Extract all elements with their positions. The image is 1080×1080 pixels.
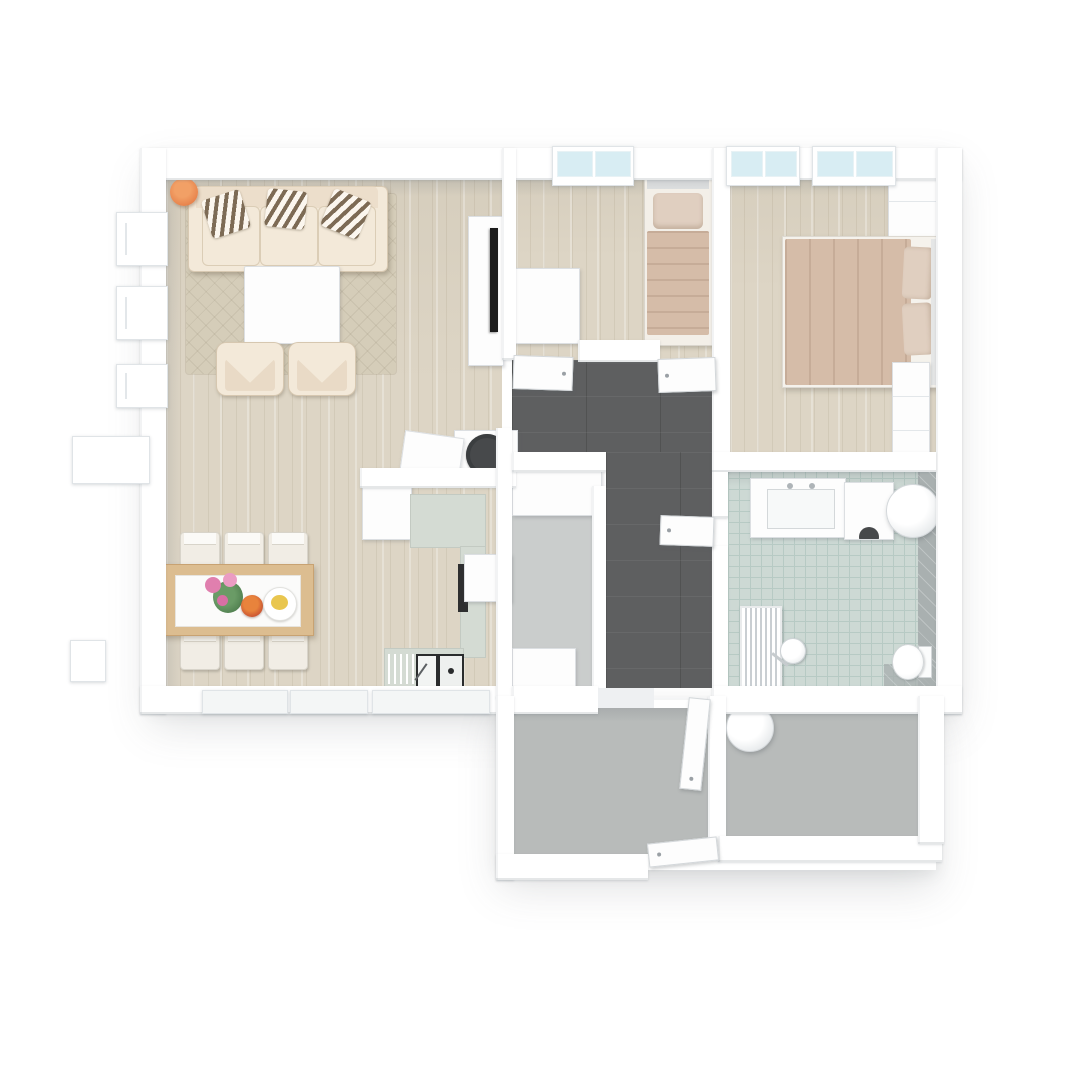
closet-unit-bottom [512, 648, 576, 688]
sill-line [125, 297, 127, 329]
bed-pillow [902, 302, 935, 355]
wall-south-kitchen [512, 686, 598, 714]
drawer-seam [893, 396, 929, 397]
flower-pink [217, 595, 228, 606]
window-left-1 [116, 212, 168, 266]
door-small-bedroom [512, 355, 573, 391]
hall-threshold [598, 688, 654, 708]
wall-storage-east [918, 696, 944, 844]
wall-bathroom-west-lower [712, 546, 728, 688]
chest-of-drawers [892, 362, 930, 466]
cooktop [438, 654, 464, 690]
window-left-2 [116, 286, 168, 340]
armchair [288, 342, 356, 396]
door-knob [667, 528, 671, 532]
window-left-3 [116, 364, 168, 408]
flower-pink [223, 573, 237, 587]
single-bed [644, 172, 714, 346]
sill-line [125, 373, 127, 399]
window-bottom-3 [372, 690, 490, 714]
coffee-table [244, 266, 340, 344]
wall-storage-south [718, 836, 942, 862]
wall-living-bedroom [502, 148, 516, 360]
bed-blanket [647, 231, 709, 335]
desk [514, 268, 580, 344]
window-bottom-1 [202, 690, 288, 714]
door-knob [657, 852, 661, 856]
drawer-seam [893, 430, 929, 431]
wall-kitchen-north [360, 468, 516, 488]
toilet-bowl [892, 644, 924, 680]
bed-pillow [902, 246, 935, 299]
towel-radiator [740, 606, 782, 694]
window-glass [765, 151, 797, 177]
window-glass [595, 151, 631, 177]
window-top-3 [812, 146, 896, 186]
wall-right [936, 148, 962, 714]
wardrobe-seam [889, 201, 937, 202]
window-glass [557, 151, 593, 177]
faucet-dot [787, 483, 793, 489]
window-bottom-2 [290, 690, 368, 714]
door-bathroom [659, 515, 714, 547]
door-knob [562, 372, 566, 376]
washer-door [859, 527, 879, 540]
window-top-1 [552, 146, 634, 186]
flower-pink [205, 577, 221, 593]
wall-between-bedrooms [712, 148, 730, 472]
door-knob [665, 374, 669, 378]
wall-bathroom-north [712, 452, 936, 472]
striped-pillow [264, 188, 308, 230]
kitchen-counter-north [410, 494, 486, 548]
closet-unit-top [512, 470, 602, 516]
exterior-unit [70, 640, 106, 682]
wall-closet-north [512, 452, 606, 472]
wall-bathroom-west-upper [712, 472, 728, 518]
door-knob [689, 777, 693, 781]
window-glass [731, 151, 763, 177]
faucet [414, 663, 427, 681]
armchair [216, 342, 284, 396]
wall-closet-west [496, 428, 512, 698]
bed-pillow [653, 193, 703, 229]
window-top-2 [726, 146, 800, 186]
exterior-ac-platform [72, 436, 150, 484]
kitchen-cabinet-north [362, 484, 412, 540]
wall-closet-east [592, 486, 606, 698]
tv-cabinet [468, 216, 504, 366]
burner-dot [448, 668, 454, 674]
wall-bedrooms-south [578, 340, 660, 362]
tv [490, 228, 498, 332]
fruit-bowl [241, 595, 263, 617]
window-glass [856, 151, 893, 177]
kitchen-sink [416, 654, 438, 690]
vanity [750, 478, 846, 538]
floor-plan-canvas [0, 0, 1080, 1080]
water-heater-cylinder [886, 484, 940, 538]
window-glass [817, 151, 854, 177]
faucet-dot [809, 483, 815, 489]
sill-line [125, 223, 127, 255]
wall-porch-storage [708, 696, 726, 858]
basin-outline [767, 489, 835, 529]
plant-pot [170, 178, 198, 206]
wall-porch-south [496, 854, 648, 880]
dining-table [160, 564, 314, 636]
croissants [271, 595, 288, 610]
door-master-bedroom [657, 357, 716, 393]
drainboard [388, 654, 414, 684]
sofa [188, 186, 386, 270]
toilet [892, 642, 932, 680]
hallway-floor-corridor [606, 452, 712, 688]
wall-porch-west [496, 696, 514, 880]
